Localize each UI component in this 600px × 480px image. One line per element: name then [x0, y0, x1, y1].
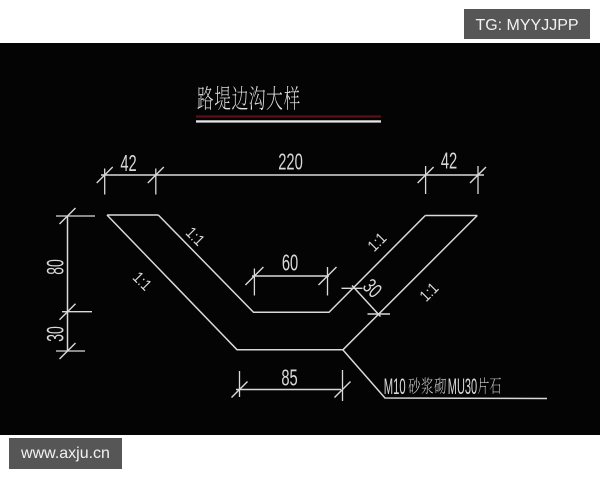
svg-text:60: 60 — [282, 251, 298, 276]
svg-text:30: 30 — [43, 326, 70, 342]
svg-text:42: 42 — [441, 149, 457, 174]
svg-text:80: 80 — [43, 259, 70, 275]
svg-text:85: 85 — [281, 366, 297, 391]
svg-text:M10: M10 — [384, 374, 406, 399]
svg-text:42: 42 — [120, 152, 136, 177]
svg-text:MU30: MU30 — [448, 374, 477, 399]
svg-text:220: 220 — [278, 150, 303, 175]
